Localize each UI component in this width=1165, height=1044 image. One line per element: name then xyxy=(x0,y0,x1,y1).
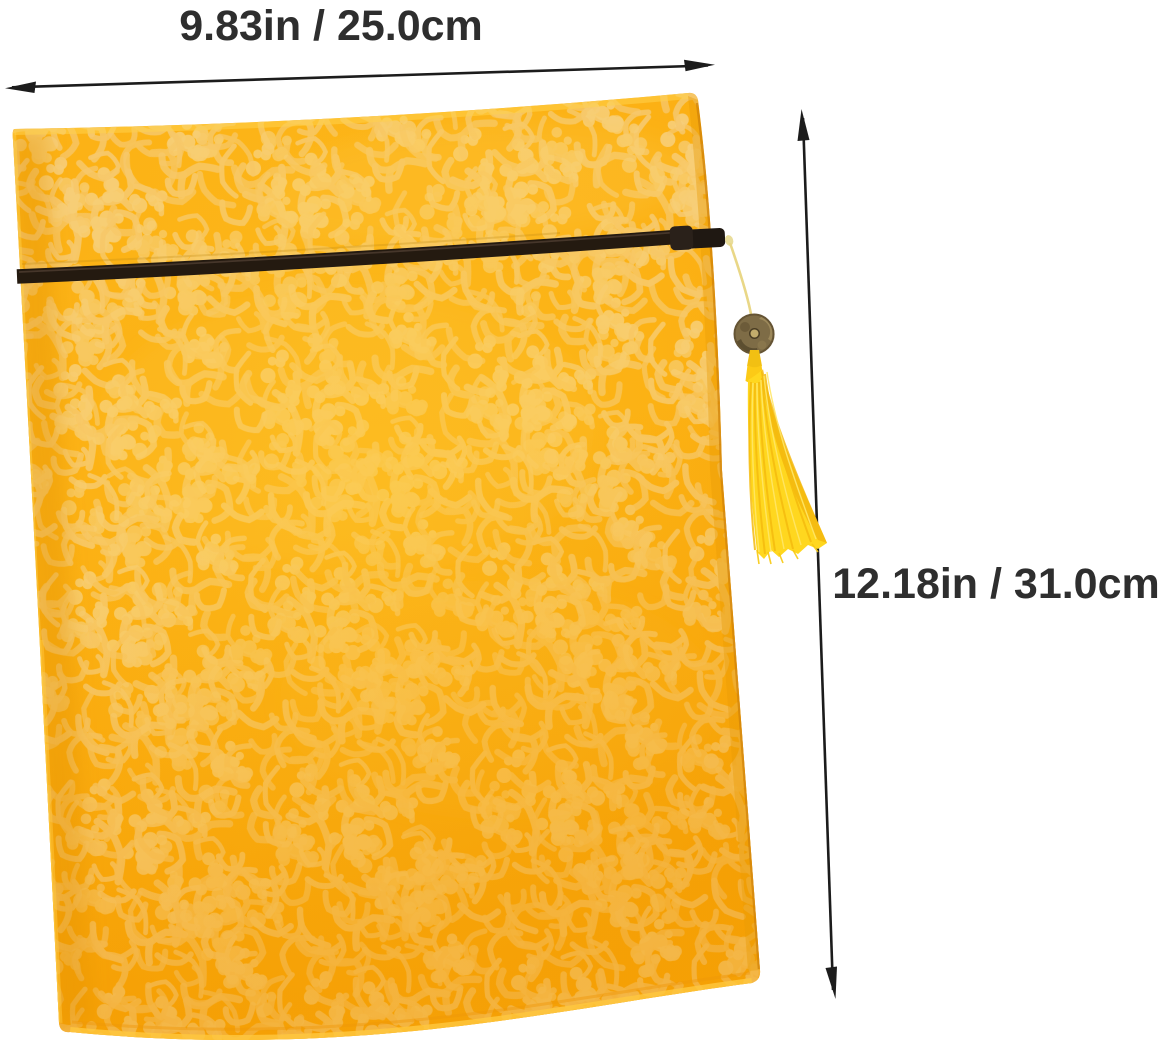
svg-text:12.18in / 31.0cm: 12.18in / 31.0cm xyxy=(832,560,1160,608)
svg-text:9.83in / 25.0cm: 9.83in / 25.0cm xyxy=(179,2,483,50)
